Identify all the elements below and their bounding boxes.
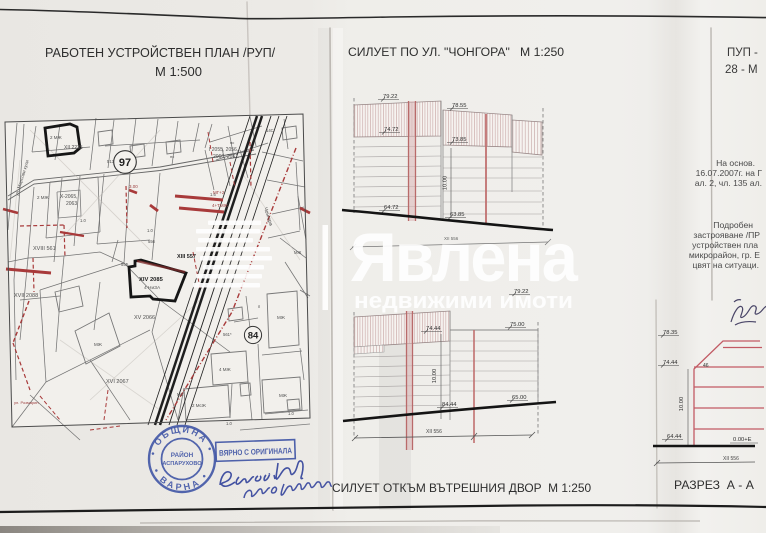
svg-text:МЖ: МЖ xyxy=(94,342,103,347)
svg-text:65.00: 65.00 xyxy=(512,395,527,401)
svg-text:74.72: 74.72 xyxy=(384,127,399,133)
svg-text:На основ.: На основ. xyxy=(716,158,755,168)
svg-text:97: 97 xyxy=(119,157,131,169)
svg-text:ал. 2, чл. 135 ал.: ал. 2, чл. 135 ал. xyxy=(695,178,762,188)
svg-text:АСПАРУХОВО: АСПАРУХОВО xyxy=(162,461,202,467)
svg-text:МЖ: МЖ xyxy=(277,315,286,320)
svg-text:РАБОТЕН УСТРОЙСТВЕН ПЛАН /РУП/: РАБОТЕН УСТРОЙСТВЕН ПЛАН /РУП/ xyxy=(45,45,276,60)
svg-text:78.35: 78.35 xyxy=(663,330,678,336)
svg-text:84.44: 84.44 xyxy=(442,402,457,408)
svg-text:XII 2235: XII 2235 xyxy=(64,145,83,151)
svg-text:СИЛУЕТ ПО УЛ. "ЧОНГОРА" М 1:: СИЛУЕТ ПО УЛ. "ЧОНГОРА" М 1:250 xyxy=(348,45,564,59)
svg-text:XV 2066: XV 2066 xyxy=(134,315,155,321)
svg-text:XVI 2067: XVI 2067 xyxy=(106,379,129,385)
svg-text:цвят на ситуаци.: цвят на ситуаци. xyxy=(692,260,759,270)
svg-text:МС: МС xyxy=(177,392,184,397)
svg-text:55Б: 55Б xyxy=(121,262,129,267)
svg-text:4 МЖ: 4 МЖ xyxy=(219,367,232,372)
svg-text:Явлена: Явлена xyxy=(350,219,578,296)
svg-text:XII 556: XII 556 xyxy=(426,429,442,435)
svg-text:XVII 2088: XVII 2088 xyxy=(14,293,38,299)
svg-text:10.00: 10.00 xyxy=(443,176,449,191)
svg-text:561*: 561* xyxy=(223,332,232,337)
svg-text:СИЛУЕТ ОТКЪМ ВЪТРЕШНИЯ ДВОР М: СИЛУЕТ ОТКЪМ ВЪТРЕШНИЯ ДВОР М 1:250 xyxy=(332,481,591,495)
svg-text:74.44: 74.44 xyxy=(426,326,441,332)
svg-text:РАЙОН: РАЙОН xyxy=(171,450,194,459)
svg-text:1.0: 1.0 xyxy=(226,421,232,426)
svg-text:78.55: 78.55 xyxy=(452,103,467,109)
svg-text:ПУП -: ПУП - xyxy=(727,47,758,59)
svg-text:2 МсЖ: 2 МсЖ xyxy=(192,403,207,408)
svg-text:I 2055, 2056,: I 2055, 2056, xyxy=(209,147,238,153)
svg-text:2060, 2061.: 2060, 2061. xyxy=(213,154,239,160)
svg-text:64.72: 64.72 xyxy=(384,205,399,211)
svg-text:устройствен пла: устройствен пла xyxy=(692,240,758,250)
svg-text:10.00: 10.00 xyxy=(679,397,685,412)
svg-text:0.00+Е: 0.00+Е xyxy=(733,437,752,443)
svg-text:МЖ: МЖ xyxy=(279,393,288,398)
svg-text:75.00: 75.00 xyxy=(510,322,525,328)
svg-text:4 НиЗА: 4 НиЗА xyxy=(144,285,161,291)
svg-text:1.0: 1.0 xyxy=(147,228,153,233)
svg-text:14С: 14С xyxy=(266,128,274,133)
svg-text:застрояване /ПР: застрояване /ПР xyxy=(693,230,760,240)
svg-text:М 1:500: М 1:500 xyxy=(155,64,202,79)
svg-text:556: 556 xyxy=(148,239,156,244)
svg-text:XIII 557: XIII 557 xyxy=(177,254,196,260)
svg-text:2 МЖ: 2 МЖ xyxy=(37,195,50,200)
svg-text:74.44: 74.44 xyxy=(663,360,678,366)
svg-text:1.0: 1.0 xyxy=(288,411,294,416)
svg-text:микрорайон, гр. Е: микрорайон, гр. Е xyxy=(689,250,760,260)
svg-text:XII 556: XII 556 xyxy=(723,456,739,462)
svg-text:2063: 2063 xyxy=(66,201,77,207)
svg-text:1.0: 1.0 xyxy=(80,218,86,223)
svg-text:4+ТМЖ: 4+ТМЖ xyxy=(212,203,229,208)
svg-text:РАЗРЕЗ А - А: РАЗРЕЗ А - А xyxy=(674,478,755,492)
svg-text:79.22: 79.22 xyxy=(383,94,398,100)
svg-text:Подробен: Подробен xyxy=(713,220,753,230)
svg-text:16.07.2007г. на Г: 16.07.2007г. на Г xyxy=(696,168,763,178)
svg-text:Х-2065,: Х-2065, xyxy=(60,194,78,200)
svg-text:28 - М: 28 - М xyxy=(725,64,758,76)
svg-text:нс: нс xyxy=(230,140,234,145)
svg-text:2 МЖ: 2 МЖ xyxy=(50,135,63,140)
svg-text:10.00: 10.00 xyxy=(432,369,438,384)
svg-text:63.85: 63.85 xyxy=(450,212,465,218)
svg-text:513: 513 xyxy=(107,159,115,164)
svg-text:73.85: 73.85 xyxy=(452,137,467,143)
svg-text:64.44: 64.44 xyxy=(667,434,682,440)
svg-text:МЖ: МЖ xyxy=(294,250,301,255)
svg-text:ул. Розмарин: ул. Розмарин xyxy=(14,400,39,405)
svg-text:недвижими имоти: недвижими имоти xyxy=(354,288,573,313)
svg-text:п: п xyxy=(258,304,260,309)
svg-text:XVIII 561: XVIII 561 xyxy=(33,246,56,252)
svg-text:3.00: 3.00 xyxy=(129,184,138,189)
svg-text:84: 84 xyxy=(248,331,259,342)
svg-text:МГ+2: МГ+2 xyxy=(213,190,225,195)
svg-text:нс: нс xyxy=(170,154,174,159)
svg-text:XIV 2085: XIV 2085 xyxy=(139,277,164,283)
svg-text:46: 46 xyxy=(703,363,709,369)
